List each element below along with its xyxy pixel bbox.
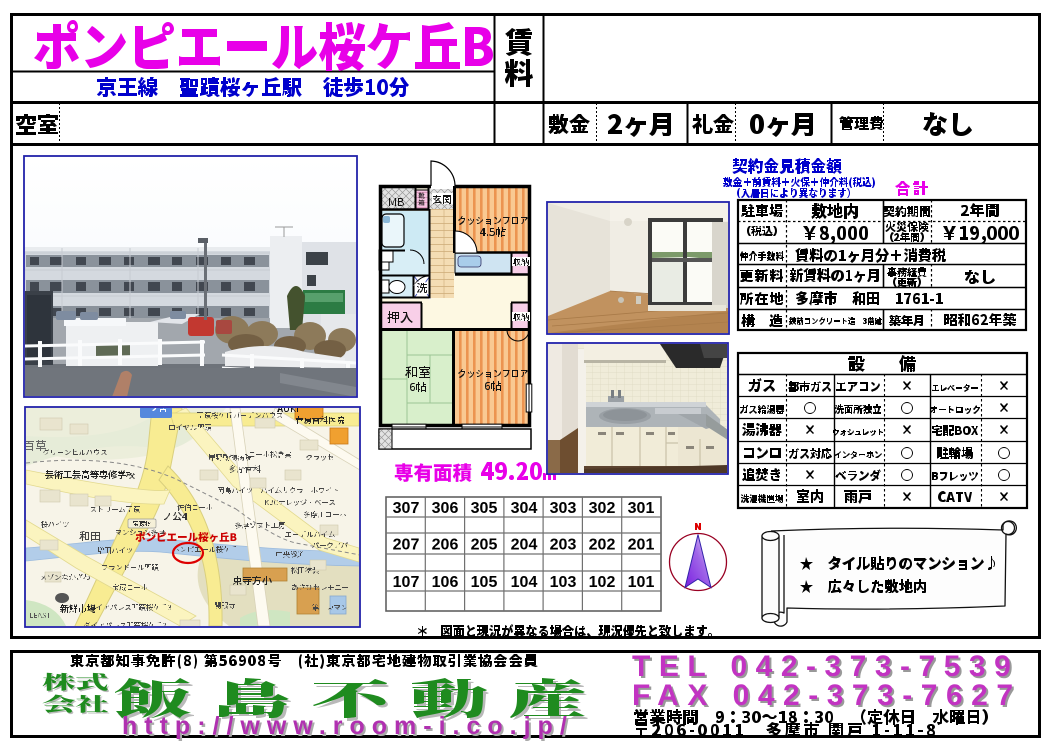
svg-text:107: 107 <box>393 574 420 591</box>
svg-text:202: 202 <box>589 537 616 554</box>
svg-text:201: 201 <box>628 537 655 554</box>
svg-text:FAX 042-373-7627: FAX 042-373-7627 <box>632 679 1022 712</box>
svg-text:105: 105 <box>471 574 498 591</box>
svg-text:304: 304 <box>511 500 538 517</box>
svg-text:305: 305 <box>471 500 498 517</box>
svg-text:102: 102 <box>589 574 616 591</box>
svg-text:104: 104 <box>511 574 538 591</box>
svg-text:301: 301 <box>628 500 655 517</box>
svg-text:206: 206 <box>432 537 459 554</box>
svg-text:203: 203 <box>550 537 577 554</box>
svg-text:306: 306 <box>432 500 459 517</box>
svg-text:307: 307 <box>393 500 420 517</box>
svg-text:101: 101 <box>628 574 655 591</box>
svg-text:106: 106 <box>432 574 459 591</box>
svg-text:302: 302 <box>589 500 616 517</box>
svg-text:204: 204 <box>511 537 538 554</box>
svg-text:207: 207 <box>393 537 420 554</box>
svg-text:205: 205 <box>471 537 498 554</box>
svg-text:103: 103 <box>550 574 577 591</box>
svg-text:303: 303 <box>550 500 577 517</box>
svg-text:http://www.room-i.co.jp/: http://www.room-i.co.jp/ <box>122 712 574 740</box>
